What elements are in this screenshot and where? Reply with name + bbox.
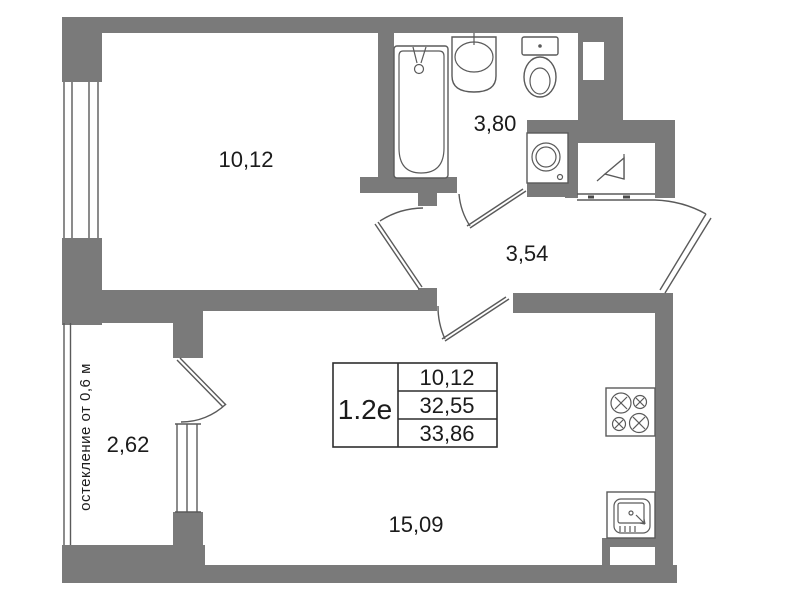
washbasin bbox=[452, 33, 496, 92]
living-area-label: 15,09 bbox=[388, 512, 443, 537]
room-area-label: 10,12 bbox=[218, 147, 273, 172]
bathtub bbox=[394, 46, 448, 178]
room-window bbox=[64, 82, 98, 238]
balcony-glazing bbox=[64, 323, 71, 545]
area-row-1: 10,12 bbox=[419, 365, 474, 390]
kitchen-niche bbox=[610, 547, 655, 565]
entrance-door-symbol bbox=[597, 154, 624, 181]
bathroom-door bbox=[459, 189, 526, 228]
balcony-door bbox=[177, 358, 226, 422]
area-row-3: 33,86 bbox=[419, 421, 474, 446]
kitchen-sink bbox=[607, 492, 655, 538]
balcony-window bbox=[175, 424, 201, 512]
walls bbox=[62, 17, 677, 583]
toilet bbox=[522, 37, 558, 97]
bathroom-area-label: 3,80 bbox=[474, 111, 517, 136]
washing-machine bbox=[527, 133, 568, 183]
floor-plan-drawing: 1.2е 10,12 32,55 33,86 10,12 3,80 3,54 2… bbox=[0, 0, 799, 600]
area-table: 1.2е 10,12 32,55 33,86 bbox=[333, 363, 497, 447]
hall-area-label: 3,54 bbox=[506, 241, 549, 266]
ventilation-shaft bbox=[583, 42, 604, 80]
balcony-glazing-note: остекление от 0,6 м bbox=[77, 363, 94, 511]
entrance-door bbox=[577, 194, 711, 293]
area-row-2: 32,55 bbox=[419, 393, 474, 418]
floor-plan: 1.2е 10,12 32,55 33,86 10,12 3,80 3,54 2… bbox=[0, 0, 799, 600]
balcony-area-label: 2,62 bbox=[107, 432, 150, 457]
room-door bbox=[375, 208, 423, 289]
stove bbox=[606, 388, 655, 436]
unit-code: 1.2е bbox=[338, 394, 393, 425]
living-room-door bbox=[438, 297, 509, 341]
